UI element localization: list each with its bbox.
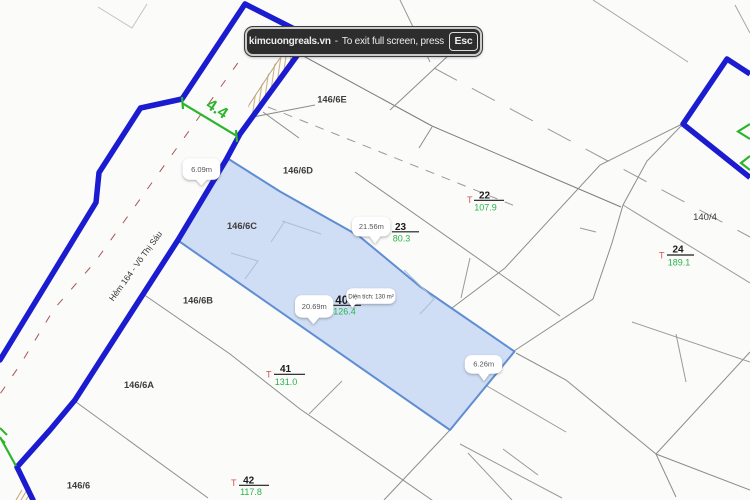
svg-text:20.69m: 20.69m [302,302,327,311]
svg-text:146/6B: 146/6B [183,296,213,306]
svg-text:146/6E: 146/6E [317,95,346,105]
svg-text:T: T [231,478,237,488]
svg-text:146/6C: 146/6C [227,221,257,231]
svg-text:146/6: 146/6 [67,481,90,491]
svg-text:21.56m: 21.56m [359,222,384,231]
svg-text:126.4: 126.4 [333,307,356,317]
svg-text:6.26m: 6.26m [473,360,494,369]
svg-text:146/6D: 146/6D [283,166,313,176]
svg-text:T: T [659,251,665,261]
svg-text:117.8: 117.8 [240,487,262,497]
svg-text:T: T [467,195,473,205]
svg-text:T: T [266,370,272,380]
svg-text:24: 24 [672,245,684,256]
svg-text:80.3: 80.3 [393,234,411,244]
svg-text:189.1: 189.1 [668,258,691,268]
svg-text:140/4: 140/4 [693,212,717,223]
svg-text:146/6A: 146/6A [124,380,154,390]
svg-text:6.09m: 6.09m [191,165,212,174]
svg-text:131.0: 131.0 [275,377,298,387]
svg-text:Diện tích: 130 m²: Diện tích: 130 m² [348,294,393,301]
svg-text:41: 41 [280,364,292,375]
svg-text:107.9: 107.9 [474,203,497,213]
